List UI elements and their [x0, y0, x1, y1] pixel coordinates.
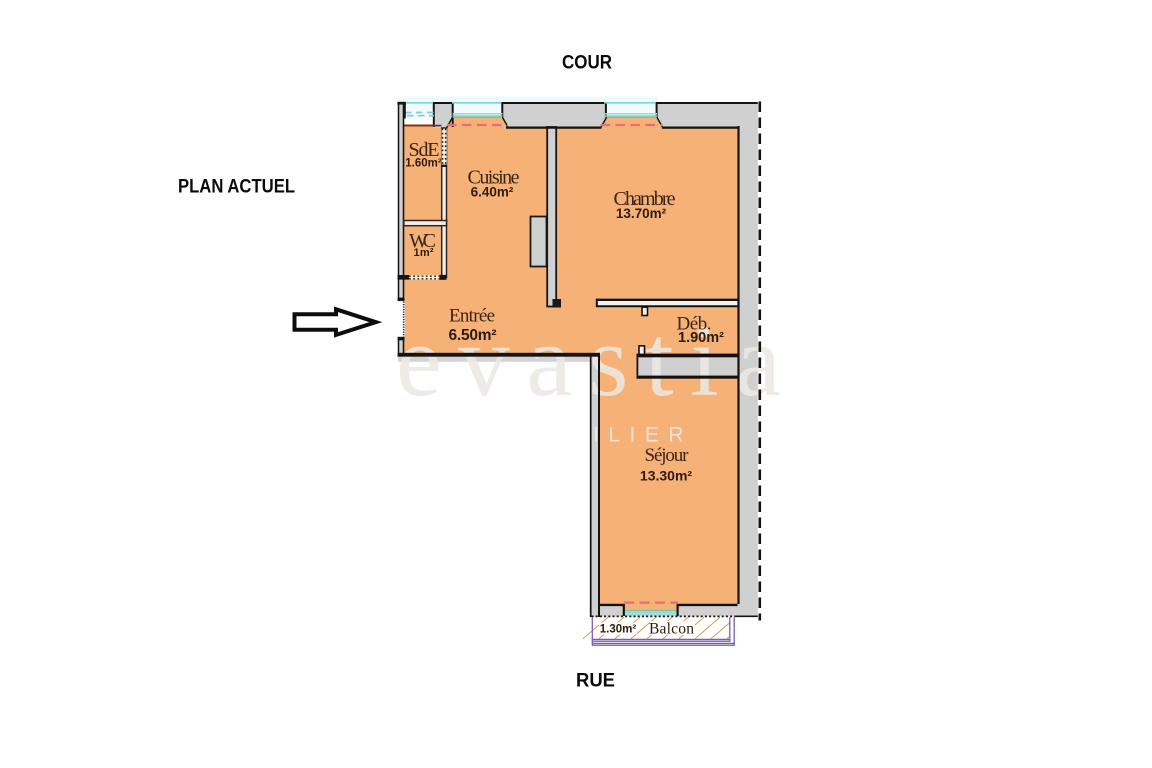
svg-text:1.90m²: 1.90m²: [678, 330, 724, 346]
svg-text:13.30m²: 13.30m²: [640, 468, 692, 484]
svg-text:6.40m²: 6.40m²: [471, 185, 514, 200]
svg-text:Balcon: Balcon: [649, 621, 694, 638]
svg-text:Séjour: Séjour: [645, 445, 690, 466]
svg-text:Entrée: Entrée: [449, 306, 495, 327]
svg-text:RUE: RUE: [576, 671, 615, 692]
svg-text:13.70m²: 13.70m²: [616, 206, 667, 221]
svg-text:COUR: COUR: [562, 53, 612, 74]
svg-text:6.50m²: 6.50m²: [449, 327, 497, 344]
svg-text:1.30m²: 1.30m²: [600, 624, 637, 636]
svg-text:1m²: 1m²: [414, 247, 434, 259]
svg-text:ILIER: ILIER: [593, 424, 693, 447]
svg-text:PLAN ACTUEL: PLAN ACTUEL: [178, 177, 295, 198]
svg-text:1.60m²: 1.60m²: [405, 158, 442, 170]
